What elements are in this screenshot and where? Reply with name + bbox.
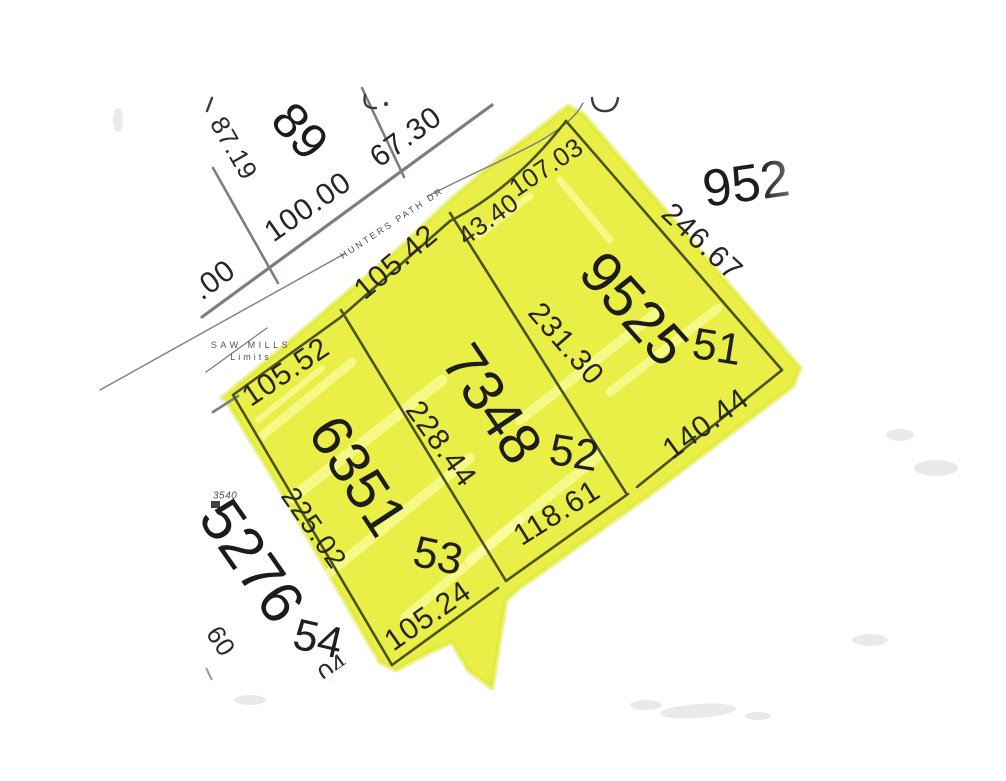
reference-marker-id: 3540 [213,491,237,502]
plat-map-canvas: 89 87.19 100.00 67.30 .00 HUNTERS PATH D… [0,0,1006,781]
lot89-dim-8719: 87.19 [204,111,264,185]
partial-dot-above-6730 [384,102,388,106]
sawmills-label-line2: Limits [230,352,272,362]
lot89-dim-6730: 67.30 [364,100,448,174]
partial-digit-top-right [592,98,618,111]
lot54-partial-dim-60: 60 [200,620,241,661]
reference-marker-square [211,501,220,508]
lot89-number: 89 [261,92,340,171]
lot89-dim-10000: 100.00 [258,165,357,248]
partial-dim-00: .00 [186,253,242,306]
lot51-number: 51 [689,319,745,375]
scan-fade-952 [758,143,836,225]
small-gray-tick [206,668,212,680]
tick-before-8719 [207,98,212,111]
lot52-number: 52 [546,425,602,481]
sawmills-label-line1: SAW MILLS [211,340,291,350]
plat-map: 89 87.19 100.00 67.30 .00 HUNTERS PATH D… [0,0,1006,781]
